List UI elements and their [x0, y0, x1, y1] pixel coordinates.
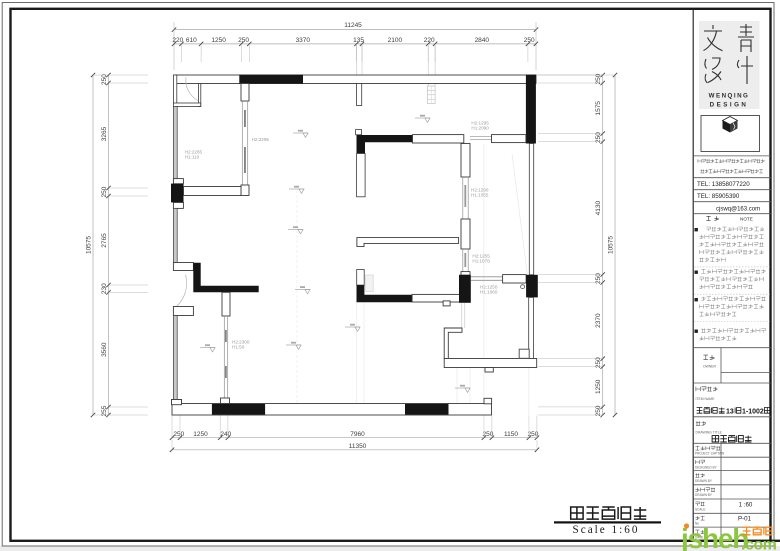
svg-text:H1:1070: H1:1070 [472, 259, 490, 264]
svg-text:250: 250 [238, 37, 249, 44]
svg-text:P-01: P-01 [738, 516, 752, 523]
svg-text:11350: 11350 [349, 443, 367, 450]
svg-text:TEL: 13858077220: TEL: 13858077220 [697, 181, 750, 188]
svg-text:2765: 2765 [101, 233, 108, 248]
svg-text:H2:2295: H2:2295 [252, 137, 270, 142]
svg-text:ITEM NAME: ITEM NAME [696, 397, 716, 401]
svg-text:DRAWN BY: DRAWN BY [695, 493, 713, 497]
svg-text:1575: 1575 [595, 101, 602, 116]
svg-text:1-1002: 1-1002 [742, 408, 764, 415]
svg-text:220: 220 [172, 37, 183, 44]
svg-text:DESIGN: DESIGN [710, 102, 749, 109]
svg-text:220: 220 [424, 37, 435, 44]
svg-text:10575: 10575 [86, 236, 93, 254]
svg-text:2370: 2370 [595, 313, 602, 328]
svg-text:3560: 3560 [101, 342, 108, 357]
svg-text:H1:110: H1:110 [185, 155, 200, 160]
svg-text:240: 240 [220, 431, 231, 438]
svg-text:PROJECT CAPTAIN: PROJECT CAPTAIN [695, 452, 725, 456]
svg-text:TEL: 85905390: TEL: 85905390 [697, 193, 740, 200]
svg-text:Scale 1:60: Scale 1:60 [573, 524, 640, 536]
svg-text:.com: .com [741, 537, 777, 551]
svg-text:230: 230 [101, 283, 108, 294]
svg-text:250: 250 [101, 186, 108, 197]
svg-text:1150: 1150 [504, 431, 518, 438]
svg-text:4130: 4130 [595, 200, 602, 215]
svg-text:250: 250 [101, 74, 108, 85]
svg-text:H1:50: H1:50 [232, 345, 245, 350]
svg-text:250: 250 [173, 431, 184, 438]
svg-text:H1:2090: H1:2090 [471, 126, 489, 131]
svg-text:11245: 11245 [344, 22, 362, 29]
svg-text:2840: 2840 [475, 37, 490, 44]
svg-text:7960: 7960 [350, 431, 365, 438]
svg-text:cjswq@163.com: cjswq@163.com [716, 207, 760, 213]
svg-text:OWNER: OWNER [703, 365, 717, 369]
svg-text:3370: 3370 [296, 37, 311, 44]
svg-text:SCALE: SCALE [695, 507, 705, 511]
svg-text:DRAWN BY: DRAWN BY [695, 479, 713, 483]
svg-text:H1:1060: H1:1060 [480, 290, 498, 295]
svg-text:H1:1055: H1:1055 [471, 193, 489, 198]
svg-text:1250: 1250 [193, 431, 208, 438]
svg-text:NOTE: NOTE [740, 217, 753, 222]
svg-text:250: 250 [524, 37, 535, 44]
svg-text:135: 135 [353, 37, 364, 44]
svg-text:DRAWING TITLE: DRAWING TITLE [696, 430, 723, 434]
svg-text:DESIGNED BY: DESIGNED BY [695, 466, 718, 470]
svg-text:2100: 2100 [388, 37, 403, 44]
svg-text:WENQING: WENQING [709, 93, 750, 100]
svg-text:jsheh: jsheh [680, 523, 748, 551]
svg-text:1250: 1250 [595, 379, 602, 394]
svg-text:3265: 3265 [101, 126, 108, 141]
svg-text:255: 255 [101, 405, 108, 416]
svg-text:13: 13 [726, 408, 734, 415]
svg-text:1 :60: 1 :60 [739, 501, 753, 508]
svg-text:10575: 10575 [608, 236, 615, 254]
svg-text:1250: 1250 [211, 37, 226, 44]
svg-text:610: 610 [186, 37, 197, 44]
